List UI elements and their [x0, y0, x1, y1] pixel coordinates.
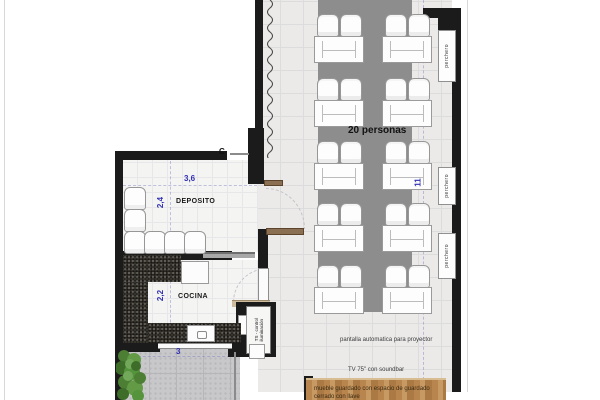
coat-rack-label: perchero: [444, 174, 450, 198]
tv-note: TV 75" con soundbar: [348, 367, 404, 373]
projector-note: pantalla automatica para proyector: [340, 337, 432, 343]
dim-dining-length: 11: [414, 178, 423, 186]
cabinet-note-line1: mueble guardado con espacio de guardado: [314, 385, 430, 393]
capacity-label: 20 personas: [348, 125, 406, 136]
dim-cocina-depth: 2,2: [156, 290, 165, 301]
storage-cabinet: mueble guardado con espacio de guardado …: [306, 378, 446, 400]
floor-plan: C TS - control iluminación percher: [0, 0, 600, 400]
coat-rack: perchero: [438, 233, 456, 279]
dim-deposito-width: 3,6: [184, 174, 195, 183]
cocina-label: COCINA: [178, 293, 208, 300]
coat-rack-label: perchero: [444, 44, 450, 68]
cabinet-note-line2: cerrado con llave: [314, 393, 430, 400]
deposito-label: DEPOSITO: [176, 198, 215, 205]
coat-rack-label: perchero: [444, 244, 450, 268]
coat-rack: perchero: [438, 167, 456, 205]
coat-rack: perchero: [438, 30, 456, 82]
dim-terrace-width: 3: [176, 347, 180, 356]
coat-racks-layer: percheropercheroperchero: [0, 0, 600, 400]
dim-deposito-depth: 2,4: [156, 197, 165, 208]
